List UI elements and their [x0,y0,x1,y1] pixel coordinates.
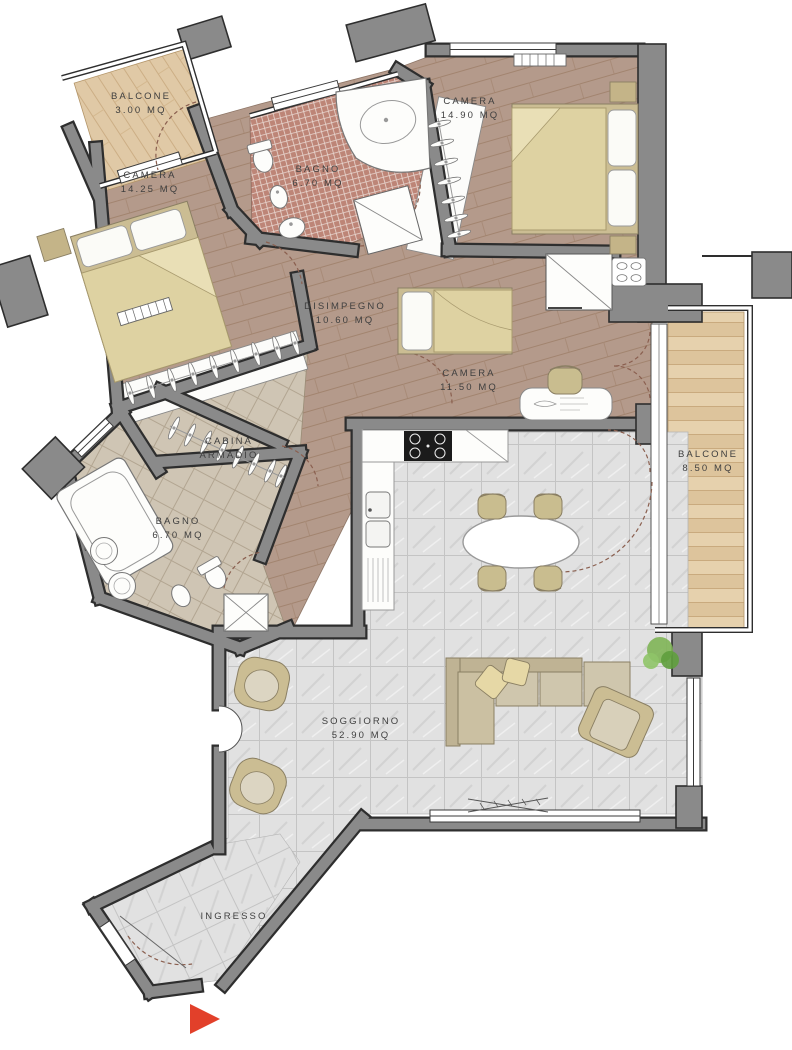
floor-plan-drawing [0,0,792,1050]
radiator-icon [514,54,566,66]
closet-icon [546,254,612,310]
single-bed-icon [398,288,512,354]
chair-icon [548,366,582,394]
room-name: CAMERA [443,95,496,109]
chair-icon [534,494,562,519]
room-label-balcone-85: BALCONE 8.50 MQ [678,448,738,477]
room-area: 52.90 MQ [332,729,391,743]
room-label-cabina-armadio: CABINA ARMADIO [199,435,258,464]
room-name: BAGNO [156,515,201,529]
room-label-camera-1: CAMERA 14.25 MQ [121,169,180,198]
room-area: 11.50 MQ [440,381,498,395]
room-label-camera-2: CAMERA 14.90 MQ [441,95,500,124]
room-area: 14.90 MQ [441,109,500,123]
kitchen-hob-icon [404,431,452,461]
shower-icon [224,594,268,631]
room-label-disimpegno: DISIMPEGNO 10.60 MQ [304,300,386,329]
dining-table-icon [463,516,579,568]
room-name: BALCONE [678,448,738,462]
entrance-arrow-icon [190,1004,220,1034]
room-area: 3.00 MQ [115,104,166,118]
room-label-soggiorno: SOGGIORNO 52.90 MQ [322,715,401,744]
room-name: SOGGIORNO [322,715,401,729]
room-area: 14.25 MQ [121,183,180,197]
shoe-rack-icon [612,258,646,286]
room-name: BAGNO [296,163,341,177]
room-name: CABINA [205,435,253,449]
floor-plan: BALCONE 3.00 MQ CAMERA 14.25 MQ BAGNO 6.… [0,0,792,1050]
room-label-bagno-1: BAGNO 6.70 MQ [292,163,343,192]
chair-icon [478,494,506,519]
room-area: 6.70 MQ [292,177,343,191]
room-name: CAMERA [442,367,495,381]
room-area: ARMADIO [199,449,258,463]
room-label-ingresso: INGRESSO [201,910,268,924]
room-area: 10.60 MQ [316,314,375,328]
room-name: BALCONE [111,90,171,104]
room-label-bagno-2: BAGNO 6.70 MQ [152,515,203,544]
room-name: CAMERA [123,169,176,183]
room-name: INGRESSO [201,910,268,924]
double-bed-icon [512,82,638,254]
room-area: 8.50 MQ [682,462,733,476]
chair-icon [534,566,562,591]
room-area: 6.70 MQ [152,529,203,543]
room-label-balcone-3: BALCONE 3.00 MQ [111,90,171,119]
room-name: DISIMPEGNO [304,300,386,314]
chair-icon [478,566,506,591]
room-label-camera-3: CAMERA 11.50 MQ [440,367,498,396]
